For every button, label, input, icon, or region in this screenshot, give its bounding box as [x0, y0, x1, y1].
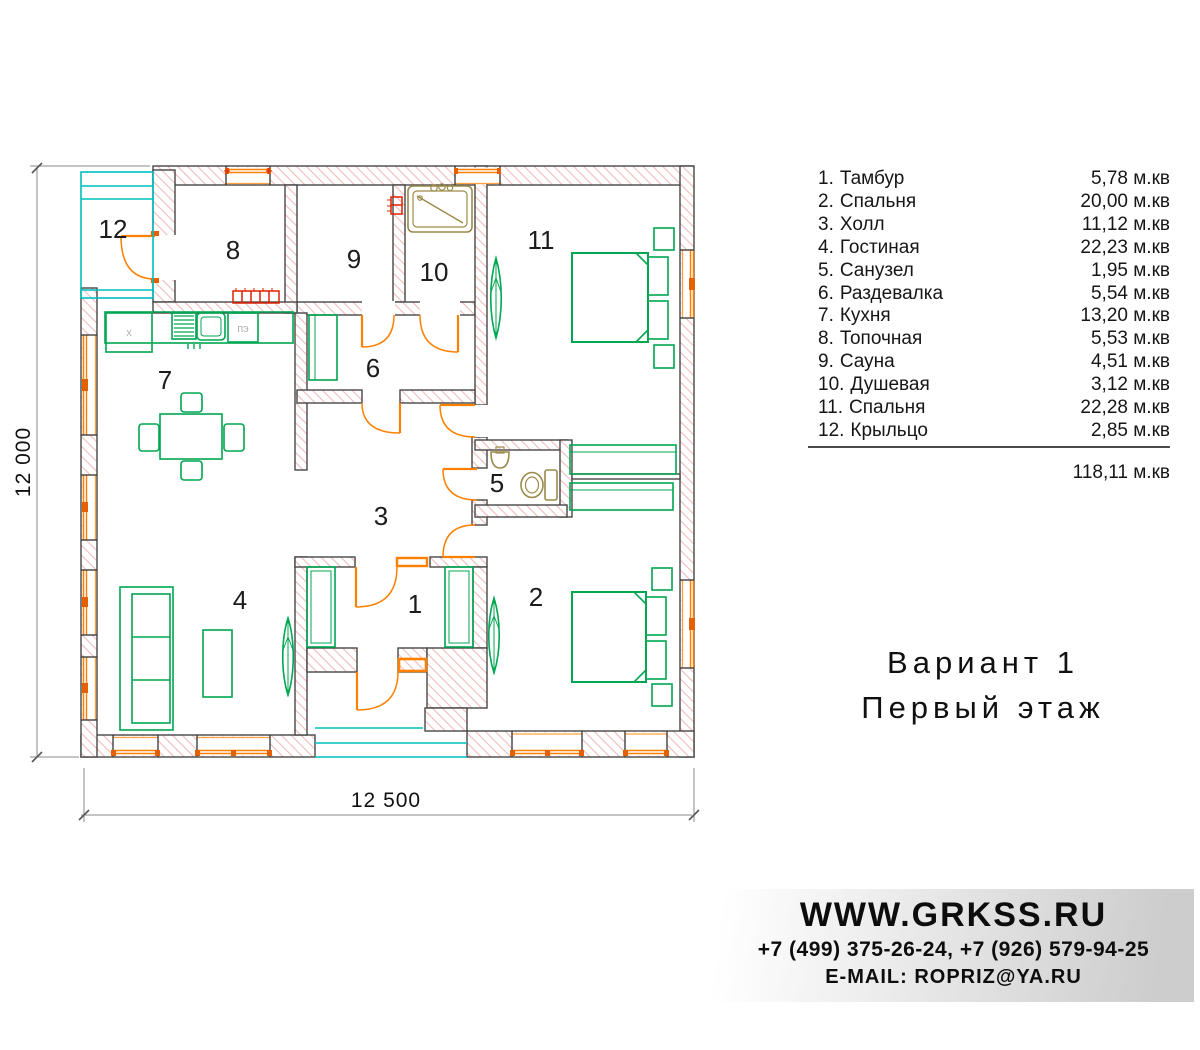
- room-label-11: 11: [528, 225, 555, 255]
- title-line-2: Первый этаж: [758, 685, 1200, 730]
- legend-name: Спальня: [840, 191, 916, 214]
- wardrobe-room2: [570, 483, 673, 510]
- wardrobe-vestibule-right: [445, 567, 473, 647]
- door-bedroom2: [443, 525, 475, 557]
- room-label-2: 2: [529, 582, 543, 612]
- window-room8-top: [224, 166, 272, 185]
- legend-name: Крыльцо: [850, 420, 928, 443]
- legend-area: 5,53 м.кв: [1091, 328, 1170, 351]
- legend-row: 3.Холл11,12 м.кв: [818, 214, 1170, 237]
- heating-layer: [233, 197, 402, 303]
- legend-num: 8.: [818, 328, 834, 351]
- legend-area: 3,12 м.кв: [1091, 374, 1170, 397]
- contact-footer: WWW.GRKSS.RU +7 (499) 375-26-24, +7 (926…: [713, 889, 1194, 1002]
- door-sauna: [362, 315, 394, 347]
- title-line-1: Вариант 1: [758, 640, 1200, 685]
- legend-area: 2,85 м.кв: [1091, 420, 1170, 443]
- window-left-3: [81, 570, 97, 635]
- plant-room2: [489, 598, 500, 673]
- legend-row: 9.Сауна4,51 м.кв: [818, 351, 1170, 374]
- dining-table: [139, 393, 244, 480]
- shower-tray: [408, 184, 472, 232]
- legend-area: 22,23 м.кв: [1080, 237, 1170, 260]
- room-label-1: 1: [408, 589, 422, 619]
- legend-name: Душевая: [850, 374, 929, 397]
- legend-name: Кухня: [840, 305, 891, 328]
- window-bottom-3: [510, 731, 584, 757]
- room-legend: 1.Тамбур5,78 м.кв 2.Спальня20,00 м.кв 3.…: [818, 168, 1170, 484]
- room-label-3: 3: [374, 501, 388, 531]
- legend-num: 3.: [818, 214, 834, 237]
- legend-num: 5.: [818, 260, 834, 283]
- legend-num: 1.: [818, 168, 834, 191]
- legend-row: 2.Спальня20,00 м.кв: [818, 191, 1170, 214]
- legend-name: Раздевалка: [840, 283, 943, 306]
- window-room2-right: [680, 580, 695, 668]
- door-wc: [443, 469, 477, 500]
- legend-row: 7.Кухня13,20 м.кв: [818, 305, 1170, 328]
- legend-num: 2.: [818, 191, 834, 214]
- legend-area: 22,28 м.кв: [1080, 397, 1170, 420]
- legend-row: 4.Гостиная22,23 м.кв: [818, 237, 1170, 260]
- legend-name: Санузел: [840, 260, 914, 283]
- email: E-MAIL: ROPRIZ@YA.RU: [713, 965, 1194, 990]
- window-room11-top: [454, 166, 501, 185]
- legend-row: 8.Топочная5,53 м.кв: [818, 328, 1170, 351]
- wardrobe-room11: [570, 445, 676, 474]
- entrance-steps: [315, 728, 467, 757]
- legend-num: 10.: [818, 374, 844, 397]
- kitchen-counter: [105, 312, 293, 352]
- window-left-4: [81, 657, 97, 720]
- window-bottom-1: [111, 735, 160, 757]
- legend-name: Сауна: [840, 351, 895, 374]
- bed-room2: [572, 568, 672, 706]
- bed-room11: [572, 228, 674, 368]
- room-label-5: 5: [490, 468, 504, 498]
- legend-area: 4,51 м.кв: [1091, 351, 1170, 374]
- stove-label: пэ: [237, 323, 249, 335]
- legend-divider: [808, 446, 1170, 448]
- total-area: 118,11 м.кв: [818, 462, 1170, 484]
- legend-area: 5,54 м.кв: [1091, 283, 1170, 306]
- room-label-8: 8: [226, 235, 240, 265]
- legend-row: 1.Тамбур5,78 м.кв: [818, 168, 1170, 191]
- legend-area: 5,78 м.кв: [1091, 168, 1170, 191]
- room-label-4: 4: [233, 585, 247, 615]
- toilet: [521, 470, 557, 500]
- legend-name: Гостиная: [840, 237, 920, 260]
- legend-row: 10.Душевая3,12 м.кв: [818, 374, 1170, 397]
- drawing-title: Вариант 1 Первый этаж: [758, 640, 1200, 730]
- legend-name: Холл: [840, 214, 885, 237]
- legend-num: 6.: [818, 283, 834, 306]
- plant-room11: [491, 258, 502, 338]
- legend-row: 11.Спальня22,28 м.кв: [818, 397, 1170, 420]
- legend-row: 6.Раздевалка5,54 м.кв: [818, 283, 1170, 306]
- legend-area: 20,00 м.кв: [1080, 191, 1170, 214]
- legend-row: 5.Санузел1,95 м.кв: [818, 260, 1170, 283]
- legend-name: Топочная: [840, 328, 922, 351]
- legend-num: 7.: [818, 305, 834, 328]
- legend-name: Тамбур: [840, 168, 905, 191]
- fridge-label: х: [126, 327, 132, 339]
- radiator: [233, 288, 279, 303]
- room-label-6: 6: [366, 353, 380, 383]
- legend-num: 4.: [818, 237, 834, 260]
- legend-num: 9.: [818, 351, 834, 374]
- legend-area: 13,20 м.кв: [1080, 305, 1170, 328]
- door-shower: [420, 315, 458, 352]
- phone-numbers: +7 (499) 375-26-24, +7 (926) 579-94-25: [713, 935, 1194, 965]
- coffee-table: [203, 630, 232, 697]
- legend-num: 12.: [818, 420, 844, 443]
- legend-area: 11,12 м.кв: [1082, 214, 1170, 237]
- legend-name: Спальня: [849, 397, 925, 420]
- wardrobe-vestibule-left: [307, 567, 335, 647]
- room-label-10: 10: [420, 257, 449, 287]
- plant-room4: [283, 618, 294, 695]
- sofa: [120, 587, 173, 730]
- room-label-12: 12: [99, 214, 128, 244]
- room-label-7: 7: [158, 365, 172, 395]
- window-room11-right: [680, 250, 695, 318]
- door-dressing-hall: [362, 403, 400, 433]
- dimension-height: 12 000: [12, 427, 35, 497]
- door-bedroom11: [440, 405, 475, 437]
- page: 12 000 12 500 1 2 3 4 5 6 7 8 9 10 11 12…: [0, 0, 1200, 1050]
- legend-row: 12.Крыльцо2,85 м.кв: [818, 420, 1170, 443]
- window-left-2: [81, 475, 97, 540]
- room-label-9: 9: [347, 244, 361, 274]
- legend-num: 11.: [818, 397, 843, 420]
- window-bottom-2: [195, 735, 272, 757]
- floor-plan: 12 000 12 500 1 2 3 4 5 6 7 8 9 10 11 12…: [0, 0, 720, 845]
- legend-area: 1,95 м.кв: [1091, 260, 1170, 283]
- bench: [309, 315, 337, 380]
- dimension-width: 12 500: [351, 789, 421, 812]
- window-kitchen-left: [81, 335, 97, 435]
- window-bottom-4: [623, 731, 669, 757]
- website: WWW.GRKSS.RU: [713, 895, 1194, 935]
